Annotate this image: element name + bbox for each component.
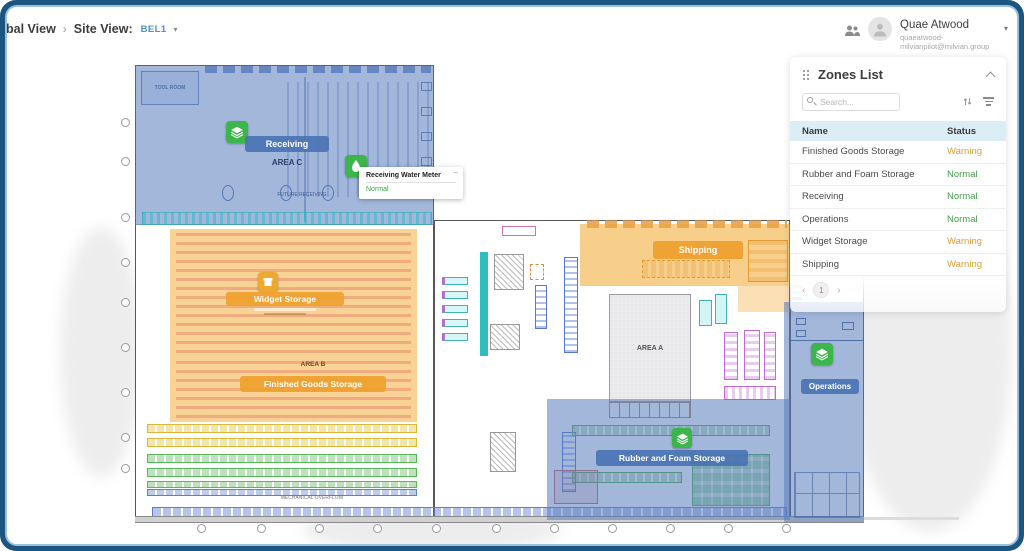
grid-marker bbox=[432, 524, 441, 533]
grid-marker bbox=[782, 524, 791, 533]
grid-marker bbox=[121, 388, 130, 397]
layers-icon[interactable] bbox=[672, 428, 692, 448]
zone-rows: Finished Goods Storage Warning Rubber an… bbox=[790, 141, 1006, 276]
filter-icon[interactable] bbox=[983, 97, 994, 106]
rack-purple bbox=[764, 332, 776, 380]
grid-marker bbox=[197, 524, 206, 533]
finished-goods-pill[interactable]: Finished Goods Storage bbox=[240, 376, 386, 392]
grid-marker bbox=[121, 343, 130, 352]
layers-icon[interactable] bbox=[811, 343, 833, 365]
drag-handle-icon[interactable] bbox=[802, 69, 809, 80]
hatched-area bbox=[490, 324, 520, 350]
grid-marker bbox=[121, 258, 130, 267]
rack-band-green bbox=[147, 481, 417, 488]
grid-marker bbox=[608, 524, 617, 533]
zone-widget-finished[interactable] bbox=[170, 229, 417, 422]
zone-name: Finished Goods Storage bbox=[802, 146, 947, 157]
machine-symbol bbox=[699, 300, 712, 326]
zone-operations[interactable] bbox=[784, 302, 864, 522]
zone-status: Normal bbox=[947, 214, 978, 225]
zone-name: Shipping bbox=[802, 259, 947, 270]
zone-status: Warning bbox=[947, 259, 982, 270]
page-number[interactable]: 1 bbox=[813, 282, 829, 298]
operations-pill[interactable]: Operations bbox=[801, 379, 859, 394]
rack-purple bbox=[744, 330, 760, 380]
search-input[interactable] bbox=[802, 93, 900, 111]
zone-name: Operations bbox=[802, 214, 947, 225]
zones-search-row bbox=[790, 86, 1006, 111]
tooltip-status: Normal bbox=[366, 186, 456, 193]
grid-marker bbox=[121, 298, 130, 307]
area-b-label: AREA B bbox=[240, 361, 386, 368]
zone-status: Warning bbox=[947, 146, 982, 157]
table-row[interactable]: Shipping Warning bbox=[790, 254, 1006, 277]
cyan-band bbox=[142, 212, 432, 225]
grid-marker bbox=[315, 524, 324, 533]
column-name: Name bbox=[802, 126, 947, 137]
rack-vertical-blue bbox=[564, 257, 578, 353]
zones-panel-title: Zones List bbox=[818, 67, 987, 82]
area-a-label: AREA A bbox=[637, 345, 663, 352]
zones-table-header: Name Status bbox=[790, 121, 1006, 141]
hatched-area bbox=[494, 254, 524, 290]
rack-purple bbox=[724, 332, 738, 380]
shipping-pill[interactable]: Shipping bbox=[653, 241, 743, 259]
rack-purple bbox=[724, 386, 776, 400]
table-row[interactable]: Receiving Normal bbox=[790, 186, 1006, 209]
mechanical-overflow-label: MECHANICAL OVERFLOW bbox=[257, 495, 367, 501]
rack-vertical-blue bbox=[535, 285, 547, 329]
grid-marker bbox=[121, 213, 130, 222]
mini-rack bbox=[442, 333, 468, 341]
zone-name: Rubber and Foam Storage bbox=[802, 169, 947, 180]
sort-icon[interactable] bbox=[962, 96, 973, 107]
rack-band-green bbox=[147, 454, 417, 463]
mini-rack bbox=[442, 305, 468, 313]
table-row[interactable]: Operations Normal bbox=[790, 209, 1006, 232]
staging-outline bbox=[530, 264, 544, 280]
grid-marker bbox=[257, 524, 266, 533]
zone-status: Normal bbox=[947, 191, 978, 202]
search-icon bbox=[807, 97, 813, 103]
conveyor-strip bbox=[480, 252, 488, 356]
rack-band-green bbox=[147, 468, 417, 477]
bottom-wall-extension bbox=[864, 517, 959, 520]
app-page: bal View › Site View: BEL1 ▾ Quae Atwood… bbox=[5, 5, 1019, 546]
grid-marker bbox=[724, 524, 733, 533]
grid-marker bbox=[121, 157, 130, 166]
tooltip-divider bbox=[366, 182, 456, 183]
zone-status: Warning bbox=[947, 236, 982, 247]
mini-rack bbox=[442, 319, 468, 327]
rack-band-yellow bbox=[147, 424, 417, 433]
hatched-area bbox=[490, 432, 516, 472]
zone-shipping-extension[interactable] bbox=[738, 286, 790, 312]
storage-box-icon[interactable] bbox=[258, 272, 278, 292]
grid-marker bbox=[550, 524, 559, 533]
zone-name: Receiving bbox=[802, 191, 947, 202]
grid-marker bbox=[373, 524, 382, 533]
table-row[interactable]: Widget Storage Warning bbox=[790, 231, 1006, 254]
grid-marker bbox=[121, 118, 130, 127]
column-status: Status bbox=[947, 126, 976, 137]
prev-page-icon[interactable]: ‹ bbox=[802, 285, 805, 296]
mini-rack bbox=[442, 291, 468, 299]
rubber-foam-pill[interactable]: Rubber and Foam Storage bbox=[596, 450, 748, 466]
machine-symbol bbox=[715, 294, 727, 324]
future-receiving-label: FUTURE RECEIVING bbox=[257, 192, 347, 198]
area-c-label: AREA C bbox=[245, 158, 329, 167]
pill-subtext-line bbox=[264, 313, 306, 315]
table-row[interactable]: Rubber and Foam Storage Normal bbox=[790, 164, 1006, 187]
zones-list-panel: Zones List bbox=[790, 57, 1006, 312]
tooltip-title: Receiving Water Meter bbox=[366, 172, 456, 179]
grid-marker bbox=[121, 464, 130, 473]
zone-status: Normal bbox=[947, 169, 978, 180]
area-a-block: AREA A bbox=[609, 294, 691, 402]
table-row[interactable]: Finished Goods Storage Warning bbox=[790, 141, 1006, 164]
grid-marker bbox=[666, 524, 675, 533]
zone-name: Widget Storage bbox=[802, 236, 947, 247]
grid-marker bbox=[121, 433, 130, 442]
screenshot-frame: bal View › Site View: BEL1 ▾ Quae Atwood… bbox=[0, 0, 1024, 551]
next-page-icon[interactable]: › bbox=[837, 285, 840, 296]
rack-band-yellow bbox=[147, 438, 417, 447]
tooltip-dash-icon: – bbox=[454, 168, 458, 177]
staging-outline bbox=[502, 226, 536, 236]
collapse-chevron-icon[interactable] bbox=[986, 72, 996, 82]
zones-panel-header: Zones List bbox=[790, 57, 1006, 86]
pill-subtext-line bbox=[254, 308, 316, 311]
pagination: ‹ 1 › bbox=[790, 276, 1006, 304]
widget-storage-pill[interactable]: Widget Storage bbox=[226, 292, 344, 306]
mini-rack bbox=[442, 277, 468, 285]
grid-marker bbox=[492, 524, 501, 533]
receiving-zone-pill[interactable]: Receiving bbox=[245, 136, 329, 152]
sensor-tooltip: Receiving Water Meter – Normal bbox=[359, 167, 463, 199]
